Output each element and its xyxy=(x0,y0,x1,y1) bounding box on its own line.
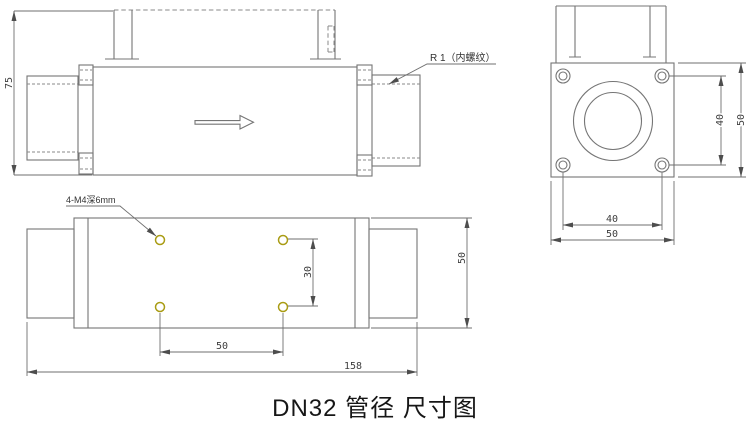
front-view: 40 50 40 50 xyxy=(551,6,747,245)
right-pipe-end xyxy=(357,65,420,176)
dim-flange-width: 50 xyxy=(551,181,674,245)
bottom-view: 4-M4深6mm 30 50 158 50 xyxy=(27,195,472,376)
side-view: 75 R 1（内螺纹） xyxy=(4,10,496,176)
dimension-drawing: 75 R 1（内螺纹） 40 50 xyxy=(0,0,750,428)
dim-75-label: 75 xyxy=(4,77,15,89)
left-pipe-cap xyxy=(27,229,74,318)
top-connector xyxy=(556,6,666,63)
mounting-holes-callout: 4-M4深6mm xyxy=(66,195,156,236)
dim-bolt-spacing-vertical: 40 xyxy=(669,76,726,165)
dim-50-width-label: 50 xyxy=(457,252,468,264)
drawing-caption: DN32 管径 尺寸图 xyxy=(272,395,478,422)
drawing-canvas: 75 R 1（内螺纹） 40 50 xyxy=(0,0,750,428)
dim-40h-label: 40 xyxy=(606,214,618,225)
thread-callout: R 1（内螺纹） xyxy=(389,51,496,84)
dim-50-pitch-label: 50 xyxy=(216,341,228,352)
dim-flange-height: 50 xyxy=(678,63,747,177)
dim-50h-label: 50 xyxy=(606,229,618,240)
thread-callout-label: R 1（内螺纹） xyxy=(430,51,496,64)
dim-50v-label: 50 xyxy=(736,114,747,126)
left-pipe-end xyxy=(27,65,93,174)
dim-body-width: 50 xyxy=(371,218,472,328)
flow-direction-arrow xyxy=(195,116,254,130)
dim-bolt-spacing-horizontal: 40 xyxy=(563,172,662,230)
right-pipe-cap xyxy=(369,229,417,318)
mounting-holes xyxy=(156,236,288,312)
flange-outline xyxy=(551,63,674,177)
flange-band-lines xyxy=(88,218,355,328)
holes-callout-label: 4-M4深6mm xyxy=(66,195,116,205)
dim-hole-pitch-vertical: 30 xyxy=(288,239,318,306)
dim-40v-label: 40 xyxy=(715,114,726,126)
bore-outer-circle xyxy=(574,82,653,161)
dim-overall-height: 75 xyxy=(4,11,113,175)
dim-158-label: 158 xyxy=(344,361,362,372)
body-outline xyxy=(74,218,369,328)
dim-30-label: 30 xyxy=(303,266,314,278)
bore-inner-circle xyxy=(585,93,642,150)
dim-hole-pitch-horizontal: 50 xyxy=(160,313,283,356)
top-housing-hidden-outline xyxy=(105,10,341,59)
